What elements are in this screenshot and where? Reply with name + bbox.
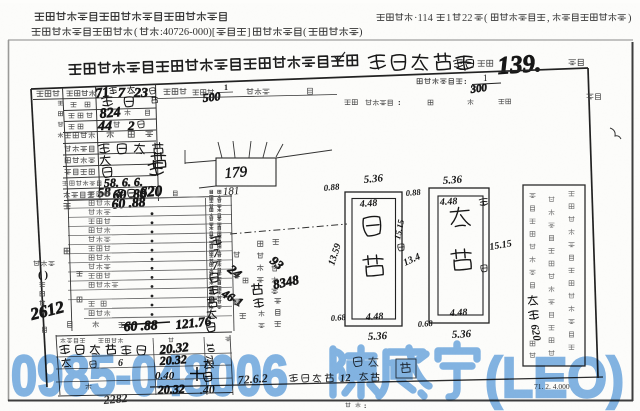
svg-text:(LEO): (LEO)	[485, 346, 624, 410]
svg-text:4.48: 4.48	[365, 311, 384, 323]
svg-text::: :	[364, 402, 366, 410]
svg-text:179: 179	[224, 164, 248, 182]
svg-text:181: 181	[223, 185, 240, 198]
svg-text:(: (	[303, 27, 307, 38]
svg-text:1: 1	[446, 13, 451, 24]
svg-text:): )	[359, 27, 363, 38]
svg-text:0.68: 0.68	[330, 312, 346, 323]
svg-text:139.: 139.	[497, 50, 543, 80]
svg-text:]: ]	[247, 27, 251, 38]
svg-text:60 .88: 60 .88	[111, 194, 146, 211]
svg-text:300: 300	[469, 82, 488, 96]
svg-text:23: 23	[133, 86, 148, 101]
svg-text:·114: ·114	[414, 13, 434, 24]
svg-text:0.88: 0.88	[323, 181, 340, 193]
svg-text:( ): ( )	[38, 269, 48, 281]
svg-text:0.88: 0.88	[405, 187, 421, 198]
svg-text:60 .88: 60 .88	[123, 317, 158, 334]
svg-text:4.48: 4.48	[449, 307, 468, 319]
svg-text:(: (	[484, 13, 488, 24]
svg-text:,: ,	[547, 13, 550, 24]
svg-text::40726-000)[: :40726-000)[	[160, 27, 216, 38]
svg-text:44: 44	[97, 119, 112, 134]
svg-text:5.36: 5.36	[363, 172, 384, 186]
svg-text:5.36: 5.36	[452, 328, 472, 341]
svg-text:0985-048006: 0985-048006	[11, 344, 288, 408]
svg-text:4.48: 4.48	[439, 196, 458, 208]
svg-text:4.48: 4.48	[358, 198, 377, 210]
svg-text:): )	[628, 13, 632, 24]
svg-text:22: 22	[462, 13, 473, 24]
svg-text::: :	[398, 98, 401, 107]
svg-text:5.36: 5.36	[442, 174, 463, 187]
svg-text:1: 1	[224, 83, 228, 92]
svg-text:0.68: 0.68	[417, 318, 433, 329]
svg-text:(: (	[134, 27, 138, 38]
svg-text:5.36: 5.36	[368, 330, 388, 343]
svg-text::: :	[464, 77, 467, 86]
svg-text:71: 71	[94, 85, 110, 102]
svg-text:2: 2	[127, 118, 135, 133]
